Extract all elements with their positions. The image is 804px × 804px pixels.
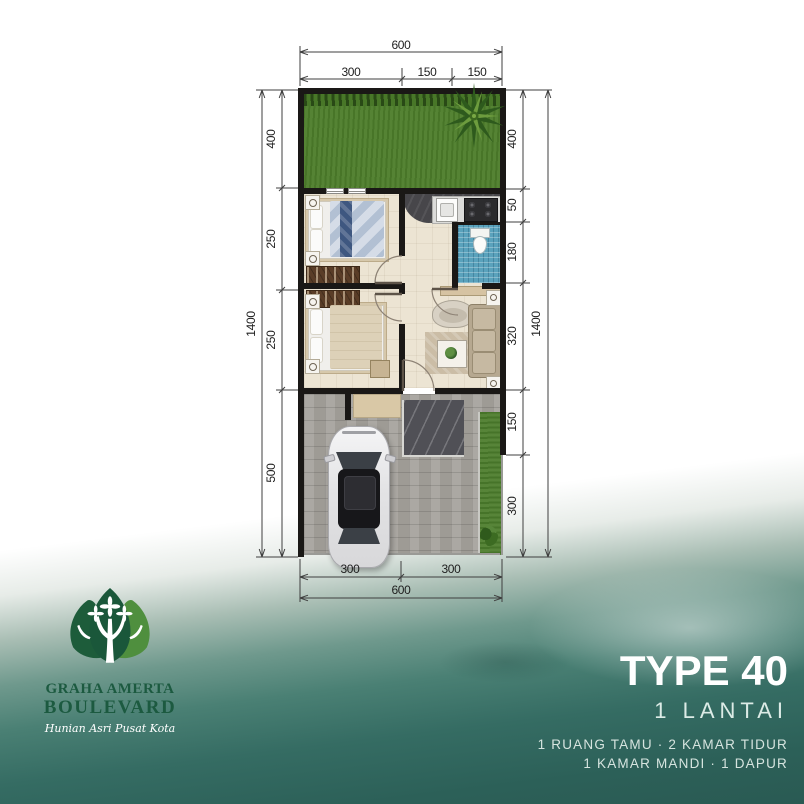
wall-bathroom-top <box>458 222 500 225</box>
dim-right-seg-3: 180 <box>505 242 519 261</box>
dim-right-total: 1400 <box>529 311 543 337</box>
car-sunroof <box>344 476 376 510</box>
dim-top-seg-3: 150 <box>467 65 486 79</box>
kitchen-sink <box>436 198 458 222</box>
dim-top-seg-2: 150 <box>417 65 436 79</box>
dim-top-seg-1: 300 <box>341 65 360 79</box>
dim-right-seg-6: 300 <box>505 496 519 515</box>
wall-front-right <box>435 388 500 394</box>
dim-bottom-seg-2: 300 <box>441 562 460 576</box>
right-boundary-line <box>501 455 503 555</box>
bed2-bench <box>370 360 390 378</box>
bed1-nightstand-b <box>305 251 320 266</box>
dim-right-seg-2: 50 <box>505 199 519 212</box>
dim-bottom-total: 600 <box>391 583 410 597</box>
unit-features-line2: 1 KAMAR MANDI · 1 DAPUR <box>538 755 788 774</box>
wall-bedroom1 <box>399 194 405 256</box>
kitchen-stove <box>464 198 498 222</box>
car <box>328 426 390 568</box>
flyer-canvas: 600 300 150 150 400 250 250 500 1400 400… <box>0 0 804 804</box>
dim-left-seg-3: 250 <box>264 330 278 349</box>
bed2-pillow-a <box>310 309 323 335</box>
front-garden-bush <box>480 526 498 546</box>
car-windshield <box>336 452 382 470</box>
floor-plan <box>298 88 506 557</box>
palm-tree <box>438 82 510 150</box>
window-bedroom1-b <box>348 188 366 194</box>
brand-name-line2: BOULEVARD <box>30 697 190 719</box>
bed1-duvet <box>330 201 384 257</box>
dim-right-seg-4: 320 <box>505 326 519 345</box>
living-sofa <box>468 304 502 378</box>
brand-tagline: Hunian Asri Pusat Kota <box>30 722 190 735</box>
bed2-nightstand-b <box>305 359 320 374</box>
car-rear-window <box>338 528 380 544</box>
wall-bedroom2-stub <box>399 289 405 294</box>
brand-name-line1: GRAHA AMERTA <box>30 681 190 698</box>
wall-bathroom-left <box>452 222 458 289</box>
unit-info: TYPE 40 1 LANTAI 1 RUANG TAMU · 2 KAMAR … <box>538 650 788 774</box>
bed1-nightstand-a <box>305 195 320 210</box>
terrace-floor <box>402 400 464 457</box>
bed2-nightstand-a <box>305 294 320 309</box>
entry-step <box>353 394 401 418</box>
wall-step-stub <box>345 394 351 420</box>
table-plant <box>445 347 457 359</box>
bed1-runner <box>340 201 352 257</box>
dim-right-seg-5: 150 <box>505 412 519 431</box>
dim-left-seg-2: 250 <box>264 229 278 248</box>
bed1-pillow-b <box>310 229 323 253</box>
wall-bedroom2 <box>399 324 405 388</box>
palm-tree-icon <box>438 82 510 150</box>
wall-bedroom-divider <box>304 283 405 289</box>
dim-left-seg-1: 400 <box>264 129 278 148</box>
window-bedroom1-a <box>326 188 344 194</box>
dim-top-total: 600 <box>391 38 410 52</box>
unit-floors-label: 1 LANTAI <box>538 698 788 724</box>
brand-logo: GRAHA AMERTA BOULEVARD Hunian Asri Pusat… <box>30 586 190 735</box>
dim-left-total: 1400 <box>244 311 258 337</box>
bed1-wardrobe <box>306 266 360 284</box>
wall-front-left <box>304 388 403 394</box>
brand-emblem-icon <box>60 586 160 674</box>
car-grill <box>342 431 376 434</box>
wall-left <box>298 88 304 557</box>
dim-bottom-seg-1: 300 <box>340 562 359 576</box>
wall-bathroom-bottom <box>482 283 500 289</box>
unit-features-line1: 1 RUANG TAMU · 2 KAMAR TIDUR <box>538 736 788 755</box>
unit-type-title: TYPE 40 <box>538 650 788 692</box>
dim-right-seg-1: 400 <box>505 129 519 148</box>
dim-left-seg-4: 500 <box>264 463 278 482</box>
